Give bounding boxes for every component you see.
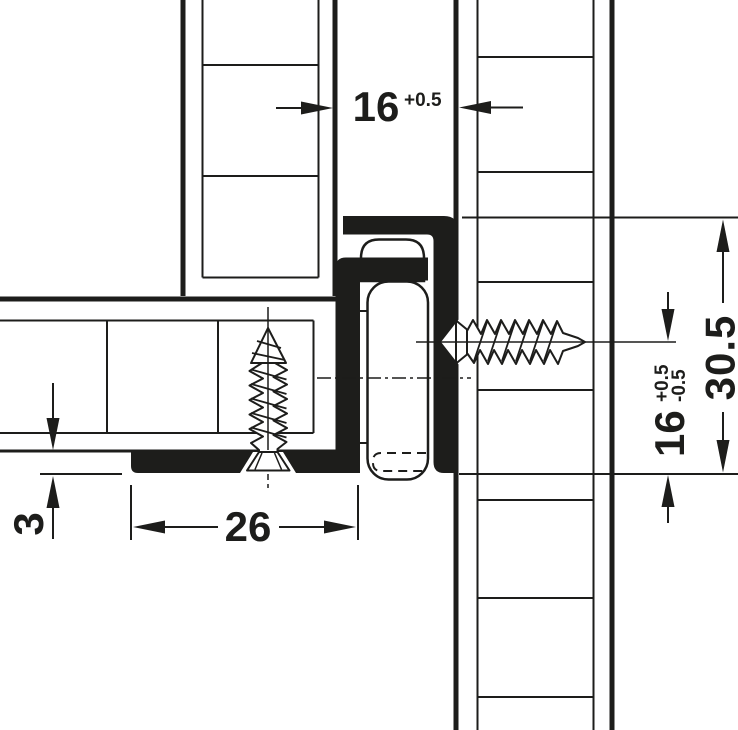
dim-clearance-value: 3 (5, 512, 52, 535)
dim-gap-tolerance: +0.5 (404, 90, 442, 111)
horizontal-mounting-screw (416, 319, 676, 365)
dim-screw-height: 16 +0.5 -0.5 (646, 292, 693, 523)
dim-gap-width: 16 +0.5 (276, 83, 523, 130)
dim-screw-tol-minus: -0.5 (669, 369, 690, 402)
dim-height-value: 30.5 (697, 315, 738, 401)
drawing-canvas: 16 +0.5 30.5 16 +0.5 -0.5 26 (0, 0, 738, 730)
vertical-mounting-screw (240, 307, 296, 488)
dim-gap-value: 16 (353, 83, 400, 130)
dim-foot-value: 26 (225, 503, 272, 550)
runner-cross-section-diagram: 16 +0.5 30.5 16 +0.5 -0.5 26 (0, 0, 738, 730)
dim-screw-value: 16 (646, 410, 693, 457)
drawer-side-panel (183, 0, 335, 296)
dim-bottom-clearance: 3 (5, 383, 122, 539)
dim-foot-length: 26 (131, 485, 358, 550)
